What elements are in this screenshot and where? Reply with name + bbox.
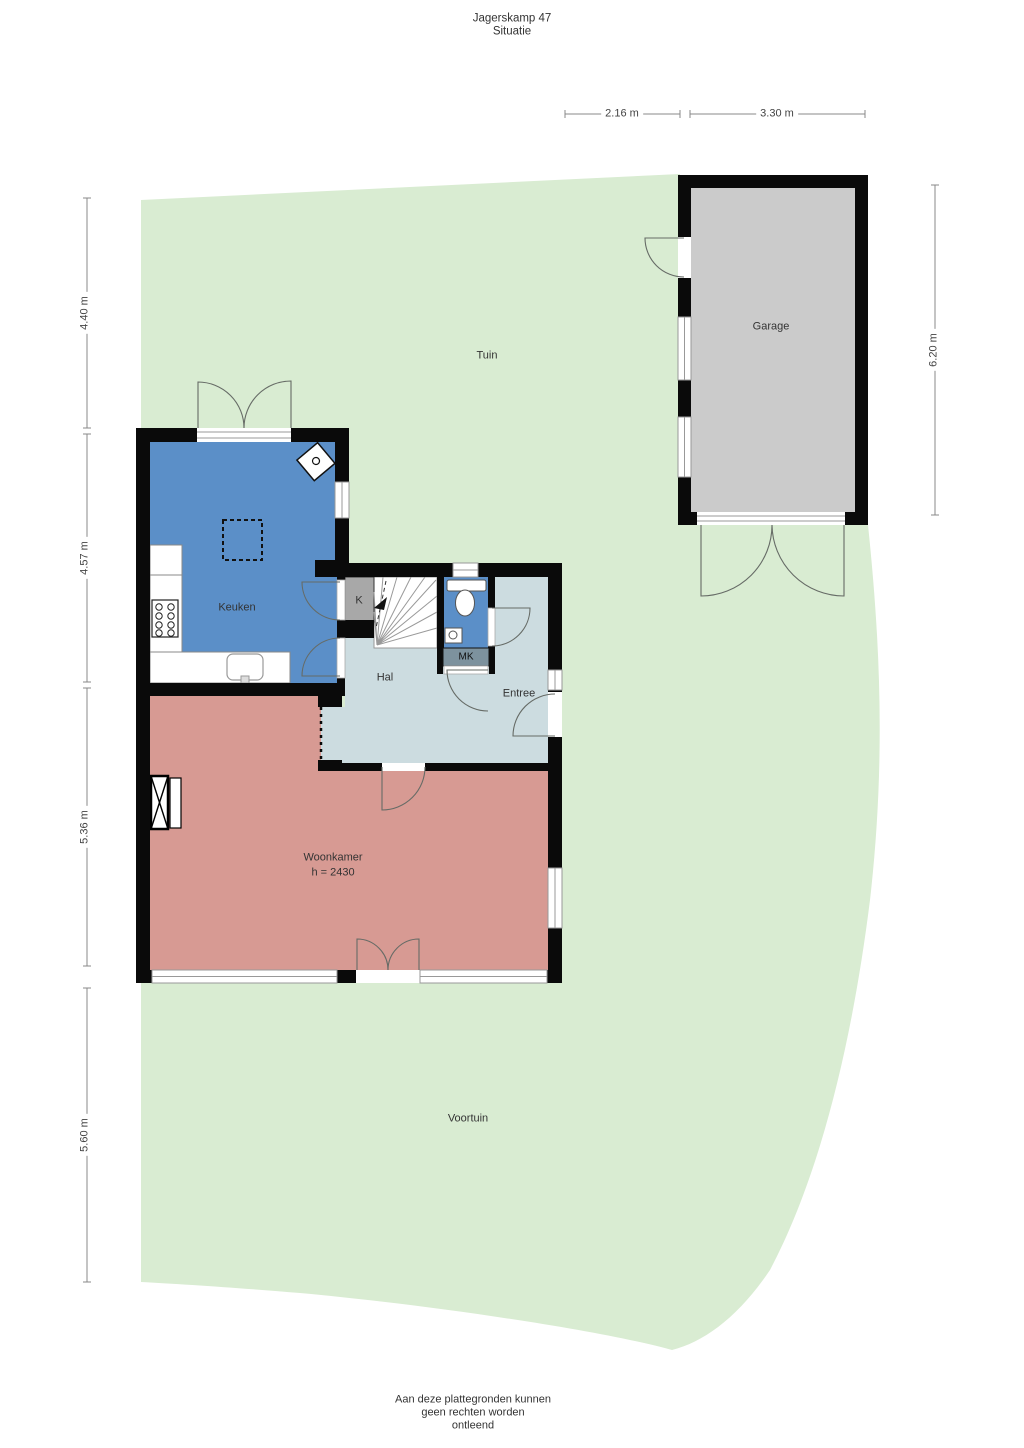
footer-line1: Aan deze plattegronden kunnen	[395, 1394, 551, 1407]
page-title-line1: Jagerskamp 47	[473, 13, 552, 26]
toilet-sink	[445, 628, 462, 643]
room-label-entree: Entree	[503, 688, 535, 701]
room-label-woonkamer-height: h = 2430	[311, 867, 354, 880]
room-label-woonkamer: Woonkamer	[303, 852, 362, 865]
room-label-kast: K	[355, 595, 362, 608]
room-label-hal: Hal	[377, 672, 394, 685]
footer-line3: ontleend	[452, 1420, 494, 1433]
dim-left-3: 5.36 m	[79, 806, 92, 848]
dim-left-4: 5.60 m	[79, 1114, 92, 1156]
dim-top-1: 2.16 m	[601, 108, 643, 121]
garage-window	[678, 417, 691, 477]
room-label-keuken: Keuken	[218, 602, 255, 615]
room-label-voortuin: Voortuin	[448, 1113, 488, 1126]
floor-plan-drawing	[0, 0, 1024, 1448]
room-label-garage: Garage	[753, 321, 790, 334]
page-title-line2: Situatie	[493, 26, 531, 39]
dim-left-1: 4.40 m	[79, 292, 92, 334]
kitchen-sink	[227, 654, 263, 683]
floor-plan: Jagerskamp 47 Situatie 2.16 m 3.30 m 4.4…	[0, 0, 1024, 1448]
room-label-tuin: Tuin	[477, 350, 498, 363]
dim-left-2: 4.57 m	[79, 537, 92, 579]
dim-right-1: 6.20 m	[928, 329, 941, 371]
garage-window	[678, 317, 691, 380]
fireplace	[151, 776, 181, 829]
dim-top-2: 3.30 m	[756, 108, 798, 121]
footer-line2: geen rechten worden	[421, 1407, 524, 1420]
stove-hob	[152, 600, 178, 637]
room-label-meterkast: MK	[459, 651, 474, 664]
